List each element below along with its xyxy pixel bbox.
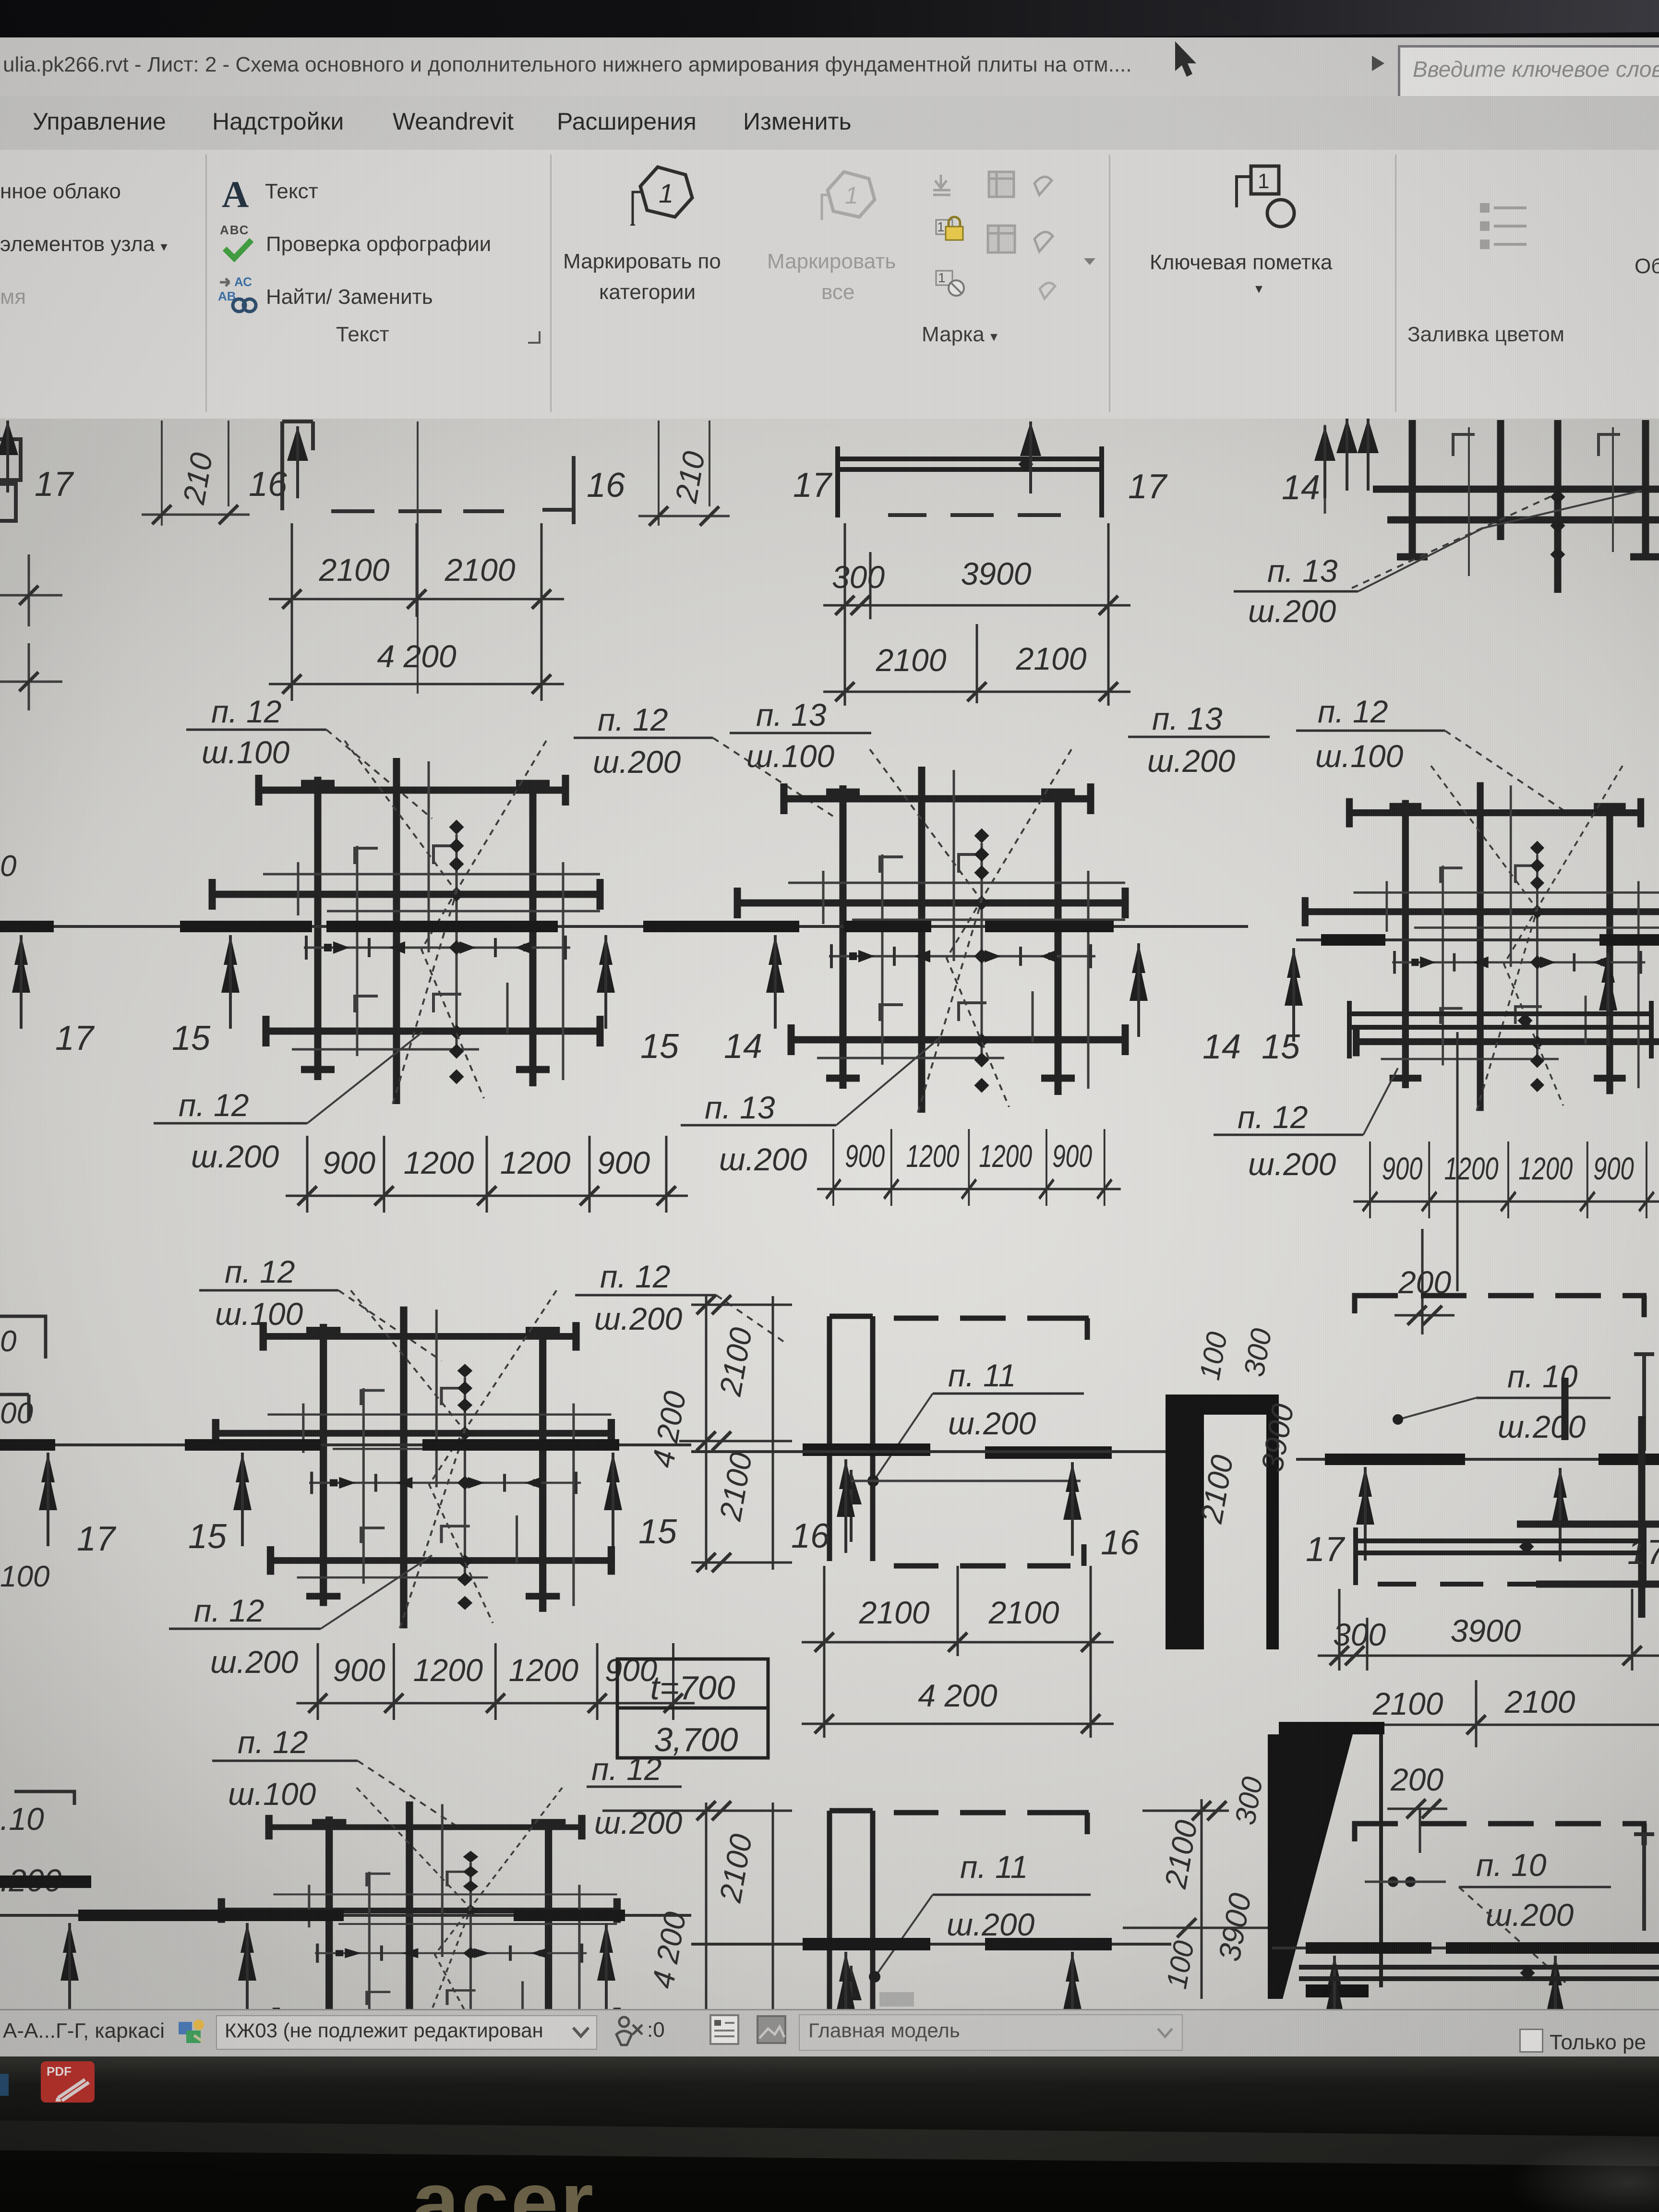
svg-text:16: 16 [1101, 1524, 1140, 1562]
svg-text:2100: 2100 [1016, 641, 1087, 676]
svg-text:300: 300 [1333, 1617, 1386, 1652]
svg-text:ш.200: ш.200 [1486, 1897, 1574, 1933]
svg-text:п. 12: п. 12 [179, 1087, 249, 1123]
svg-text:п. 11: п. 11 [960, 1849, 1028, 1885]
svg-text:п. 12: п. 12 [591, 1751, 661, 1787]
svg-text:2100: 2100 [988, 1595, 1059, 1630]
svg-text:2100: 2100 [713, 1831, 759, 1905]
svg-text:210: 210 [669, 448, 712, 505]
svg-text:ш.200: ш.200 [719, 1142, 807, 1177]
svg-text:ш.200: ш.200 [947, 1907, 1035, 1942]
svg-text:4 200: 4 200 [377, 638, 456, 674]
svg-text:ш.200: ш.200 [1248, 1146, 1336, 1182]
svg-text:t=700: t=700 [650, 1669, 735, 1707]
svg-text:2100: 2100 [1372, 1686, 1443, 1721]
svg-text:17: 17 [793, 466, 833, 505]
svg-text:300: 300 [1238, 1326, 1277, 1379]
svg-text:200: 200 [1390, 1762, 1443, 1797]
svg-text:ш.100: ш.100 [1315, 738, 1404, 774]
svg-text:п. 12: п. 12 [194, 1593, 264, 1628]
svg-text:ш.200: ш.200 [948, 1406, 1036, 1441]
svg-text:0: 0 [0, 1325, 16, 1358]
svg-text:17: 17 [1128, 468, 1168, 506]
svg-text:п. 13: п. 13 [1152, 701, 1223, 736]
svg-text:14: 14 [1282, 469, 1320, 507]
svg-text:15: 15 [172, 1019, 211, 1058]
svg-text:300: 300 [832, 559, 885, 595]
svg-text:ш.100: ш.100 [746, 738, 835, 774]
svg-text:2100: 2100 [1158, 1817, 1204, 1891]
svg-text:4 200: 4 200 [645, 1388, 693, 1470]
svg-text:2100: 2100 [1504, 1684, 1575, 1719]
svg-text:ш.200: ш.200 [1248, 593, 1336, 629]
svg-text:п. 13: п. 13 [705, 1090, 775, 1125]
svg-text:16: 16 [587, 466, 625, 505]
svg-text:15: 15 [1262, 1028, 1300, 1066]
svg-text:3,700: 3,700 [654, 1721, 738, 1758]
svg-text:0: 0 [0, 850, 16, 883]
svg-text:2100: 2100 [859, 1595, 930, 1630]
svg-text:3900: 3900 [961, 556, 1032, 591]
svg-text:п. 11: п. 11 [948, 1358, 1016, 1393]
svg-text:2100: 2100 [445, 552, 516, 588]
svg-text:ш.200: ш.200 [210, 1644, 299, 1680]
svg-text:ш.200: ш.200 [1498, 1409, 1586, 1444]
svg-text:15: 15 [188, 1517, 227, 1556]
svg-text:п. 10: п. 10 [1476, 1847, 1547, 1883]
svg-text:2100: 2100 [876, 642, 947, 678]
svg-text:100: 100 [0, 1560, 49, 1593]
svg-text:15: 15 [638, 1513, 677, 1551]
svg-text:4 200: 4 200 [918, 1678, 997, 1713]
svg-text:100: 100 [1160, 1938, 1200, 1991]
svg-text:14: 14 [724, 1027, 762, 1066]
svg-text:ш.200: ш.200 [1147, 743, 1236, 779]
svg-text:п. 12: п. 12 [238, 1724, 308, 1760]
svg-text:2100: 2100 [713, 1325, 759, 1399]
svg-text:ш.100: ш.100 [215, 1296, 303, 1332]
svg-text:14: 14 [1202, 1028, 1241, 1066]
svg-text:100: 100 [1193, 1329, 1233, 1382]
svg-text:210: 210 [176, 450, 219, 507]
svg-text:00: 00 [0, 1397, 33, 1430]
svg-text:17: 17 [35, 465, 74, 504]
svg-text:п. 12: п. 12 [211, 694, 281, 729]
svg-text:17: 17 [77, 1520, 117, 1558]
svg-text:ш.200: ш.200 [191, 1139, 279, 1174]
svg-text:п. 13: п. 13 [1267, 553, 1338, 589]
svg-text:17: 17 [55, 1019, 95, 1058]
svg-text:п. 12: п. 12 [598, 702, 668, 737]
svg-text:3900: 3900 [1451, 1613, 1521, 1648]
svg-text:п. 12: п. 12 [1318, 694, 1388, 729]
svg-text:п. 12: п. 12 [1238, 1099, 1308, 1135]
svg-text:2100: 2100 [713, 1450, 759, 1524]
svg-text:ш.100: ш.100 [202, 734, 290, 770]
svg-text:п. 12: п. 12 [600, 1259, 670, 1294]
svg-text:4 200: 4 200 [645, 1909, 693, 1991]
svg-text:15: 15 [640, 1027, 679, 1066]
svg-text:п. 13: п. 13 [756, 697, 827, 733]
svg-text:16: 16 [791, 1517, 830, 1555]
svg-text:п. 12: п. 12 [225, 1254, 295, 1289]
svg-text:300: 300 [1229, 1774, 1269, 1827]
svg-text:ш.100: ш.100 [228, 1776, 316, 1812]
svg-text:2100: 2100 [319, 552, 390, 588]
svg-text:17: 17 [1306, 1530, 1346, 1569]
svg-text:.10: .10 [0, 1801, 44, 1837]
svg-text:ш.200: ш.200 [593, 744, 681, 780]
svg-text:ш.200: ш.200 [594, 1301, 683, 1336]
